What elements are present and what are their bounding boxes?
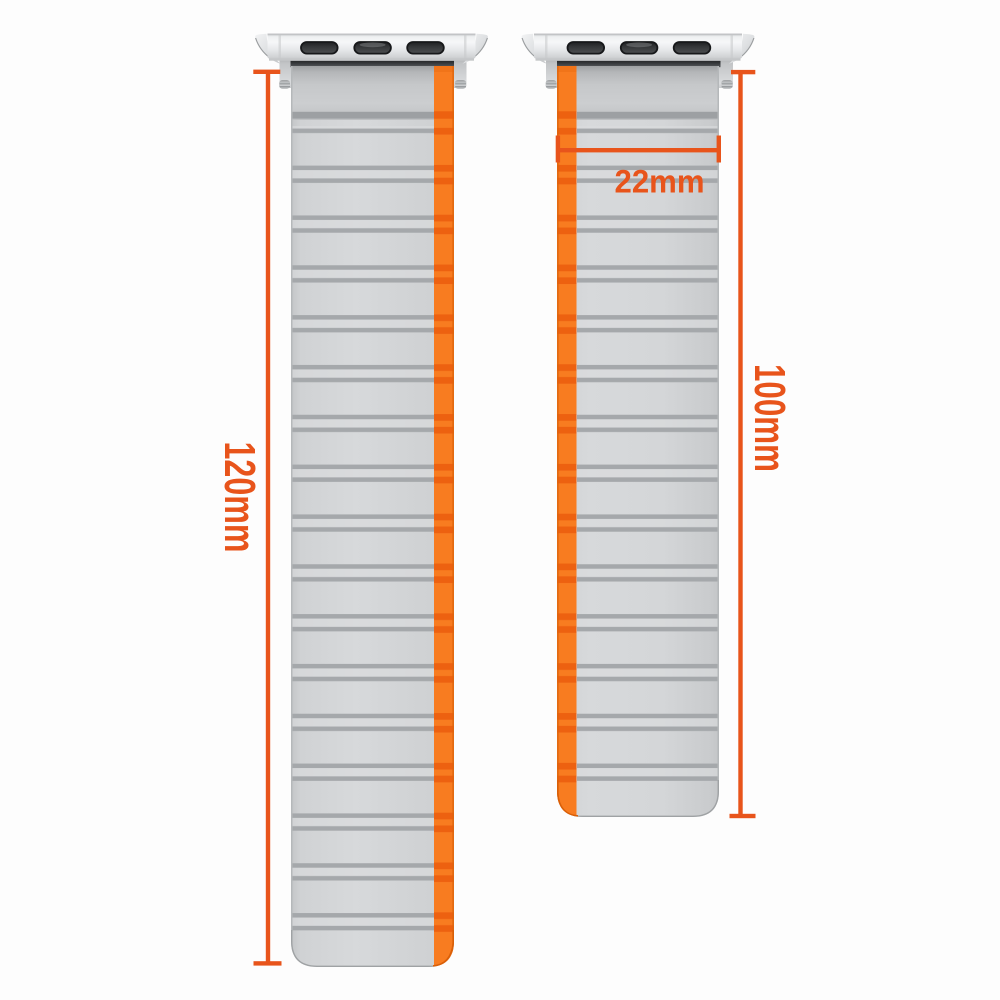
svg-text:22mm: 22mm bbox=[615, 164, 705, 200]
svg-text:120mm: 120mm bbox=[215, 442, 264, 553]
svg-text:100mm: 100mm bbox=[745, 364, 794, 472]
